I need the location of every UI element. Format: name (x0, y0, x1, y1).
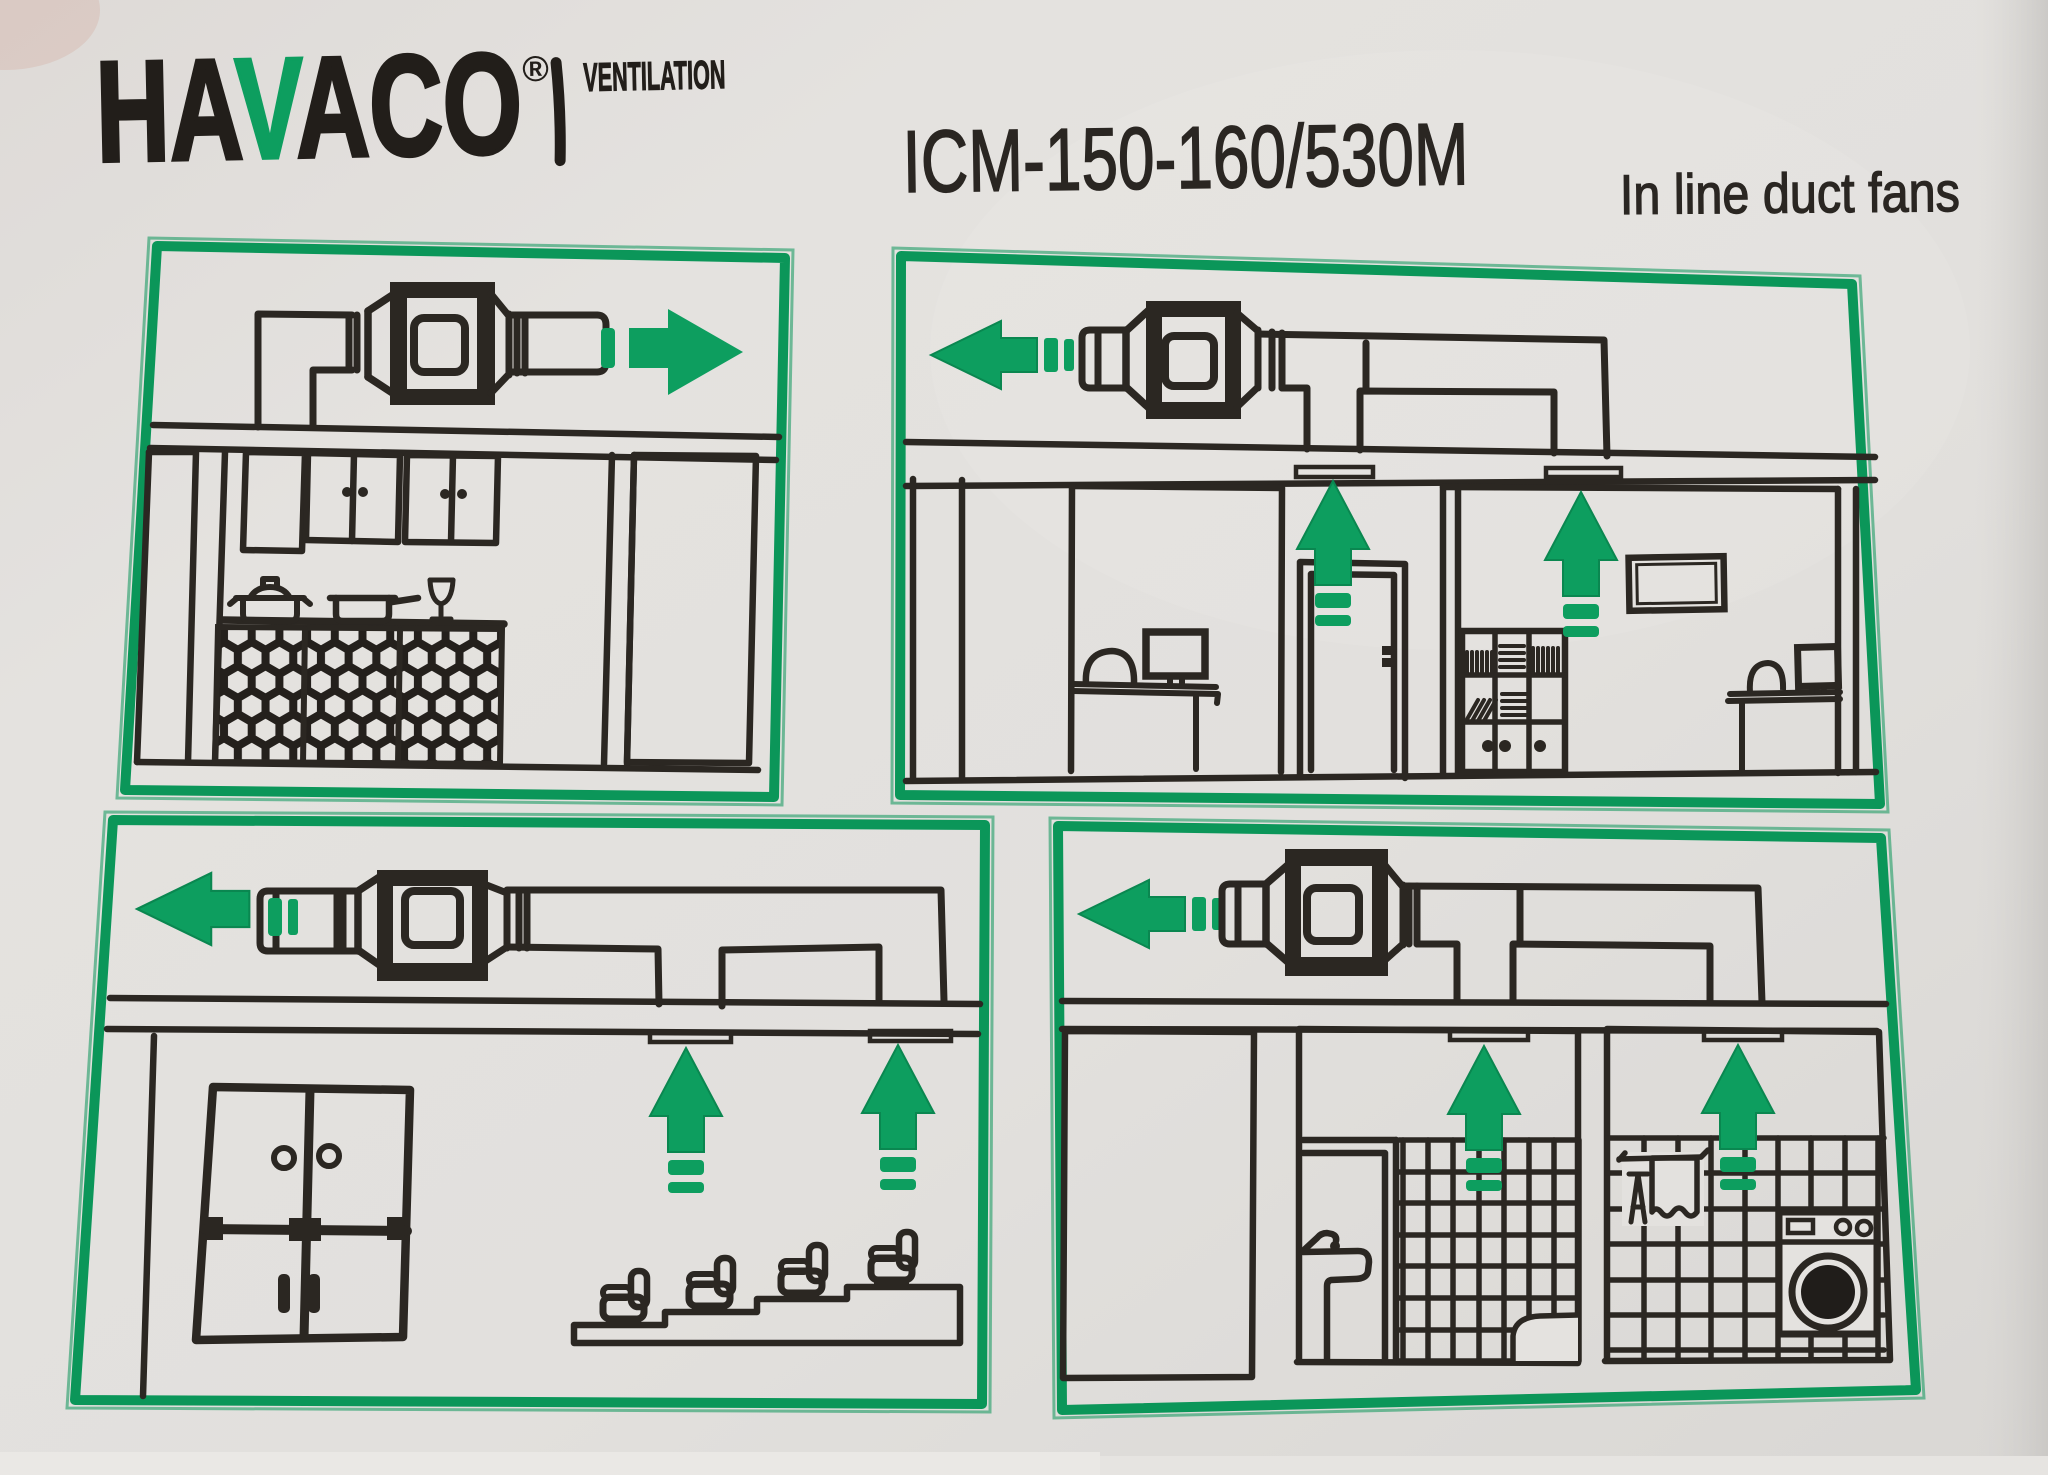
svg-text:®: ® (522, 48, 549, 90)
svg-text:HAVACO: HAVACO (94, 24, 523, 192)
svg-text:ICM-150-160/530M: ICM-150-160/530M (902, 104, 1469, 211)
svg-text:VENTILATION: VENTILATION (583, 53, 726, 100)
svg-text:In line duct fans: In line duct fans (1620, 160, 1961, 226)
